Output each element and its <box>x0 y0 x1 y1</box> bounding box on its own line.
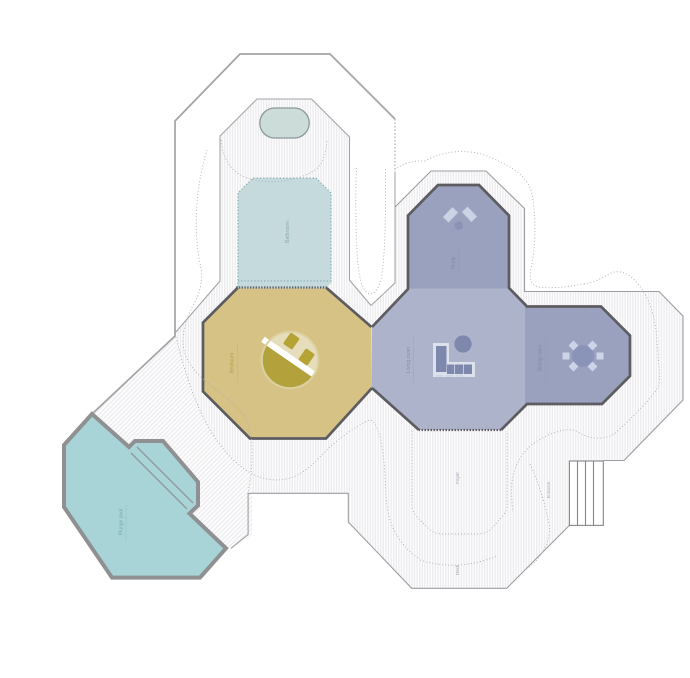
svg-text:Bedroom: Bedroom <box>230 353 236 373</box>
svg-text:Foyer: Foyer <box>455 472 460 484</box>
svg-text:Deck: Deck <box>455 564 460 575</box>
svg-text:Study: Study <box>451 256 457 269</box>
svg-text:Plunge pool: Plunge pool <box>119 509 125 535</box>
svg-text:Entrance: Entrance <box>546 481 551 498</box>
svg-text:Living room: Living room <box>406 347 412 373</box>
svg-text:Bathroom: Bathroom <box>285 221 291 243</box>
svg-text:Dining room: Dining room <box>538 345 544 372</box>
